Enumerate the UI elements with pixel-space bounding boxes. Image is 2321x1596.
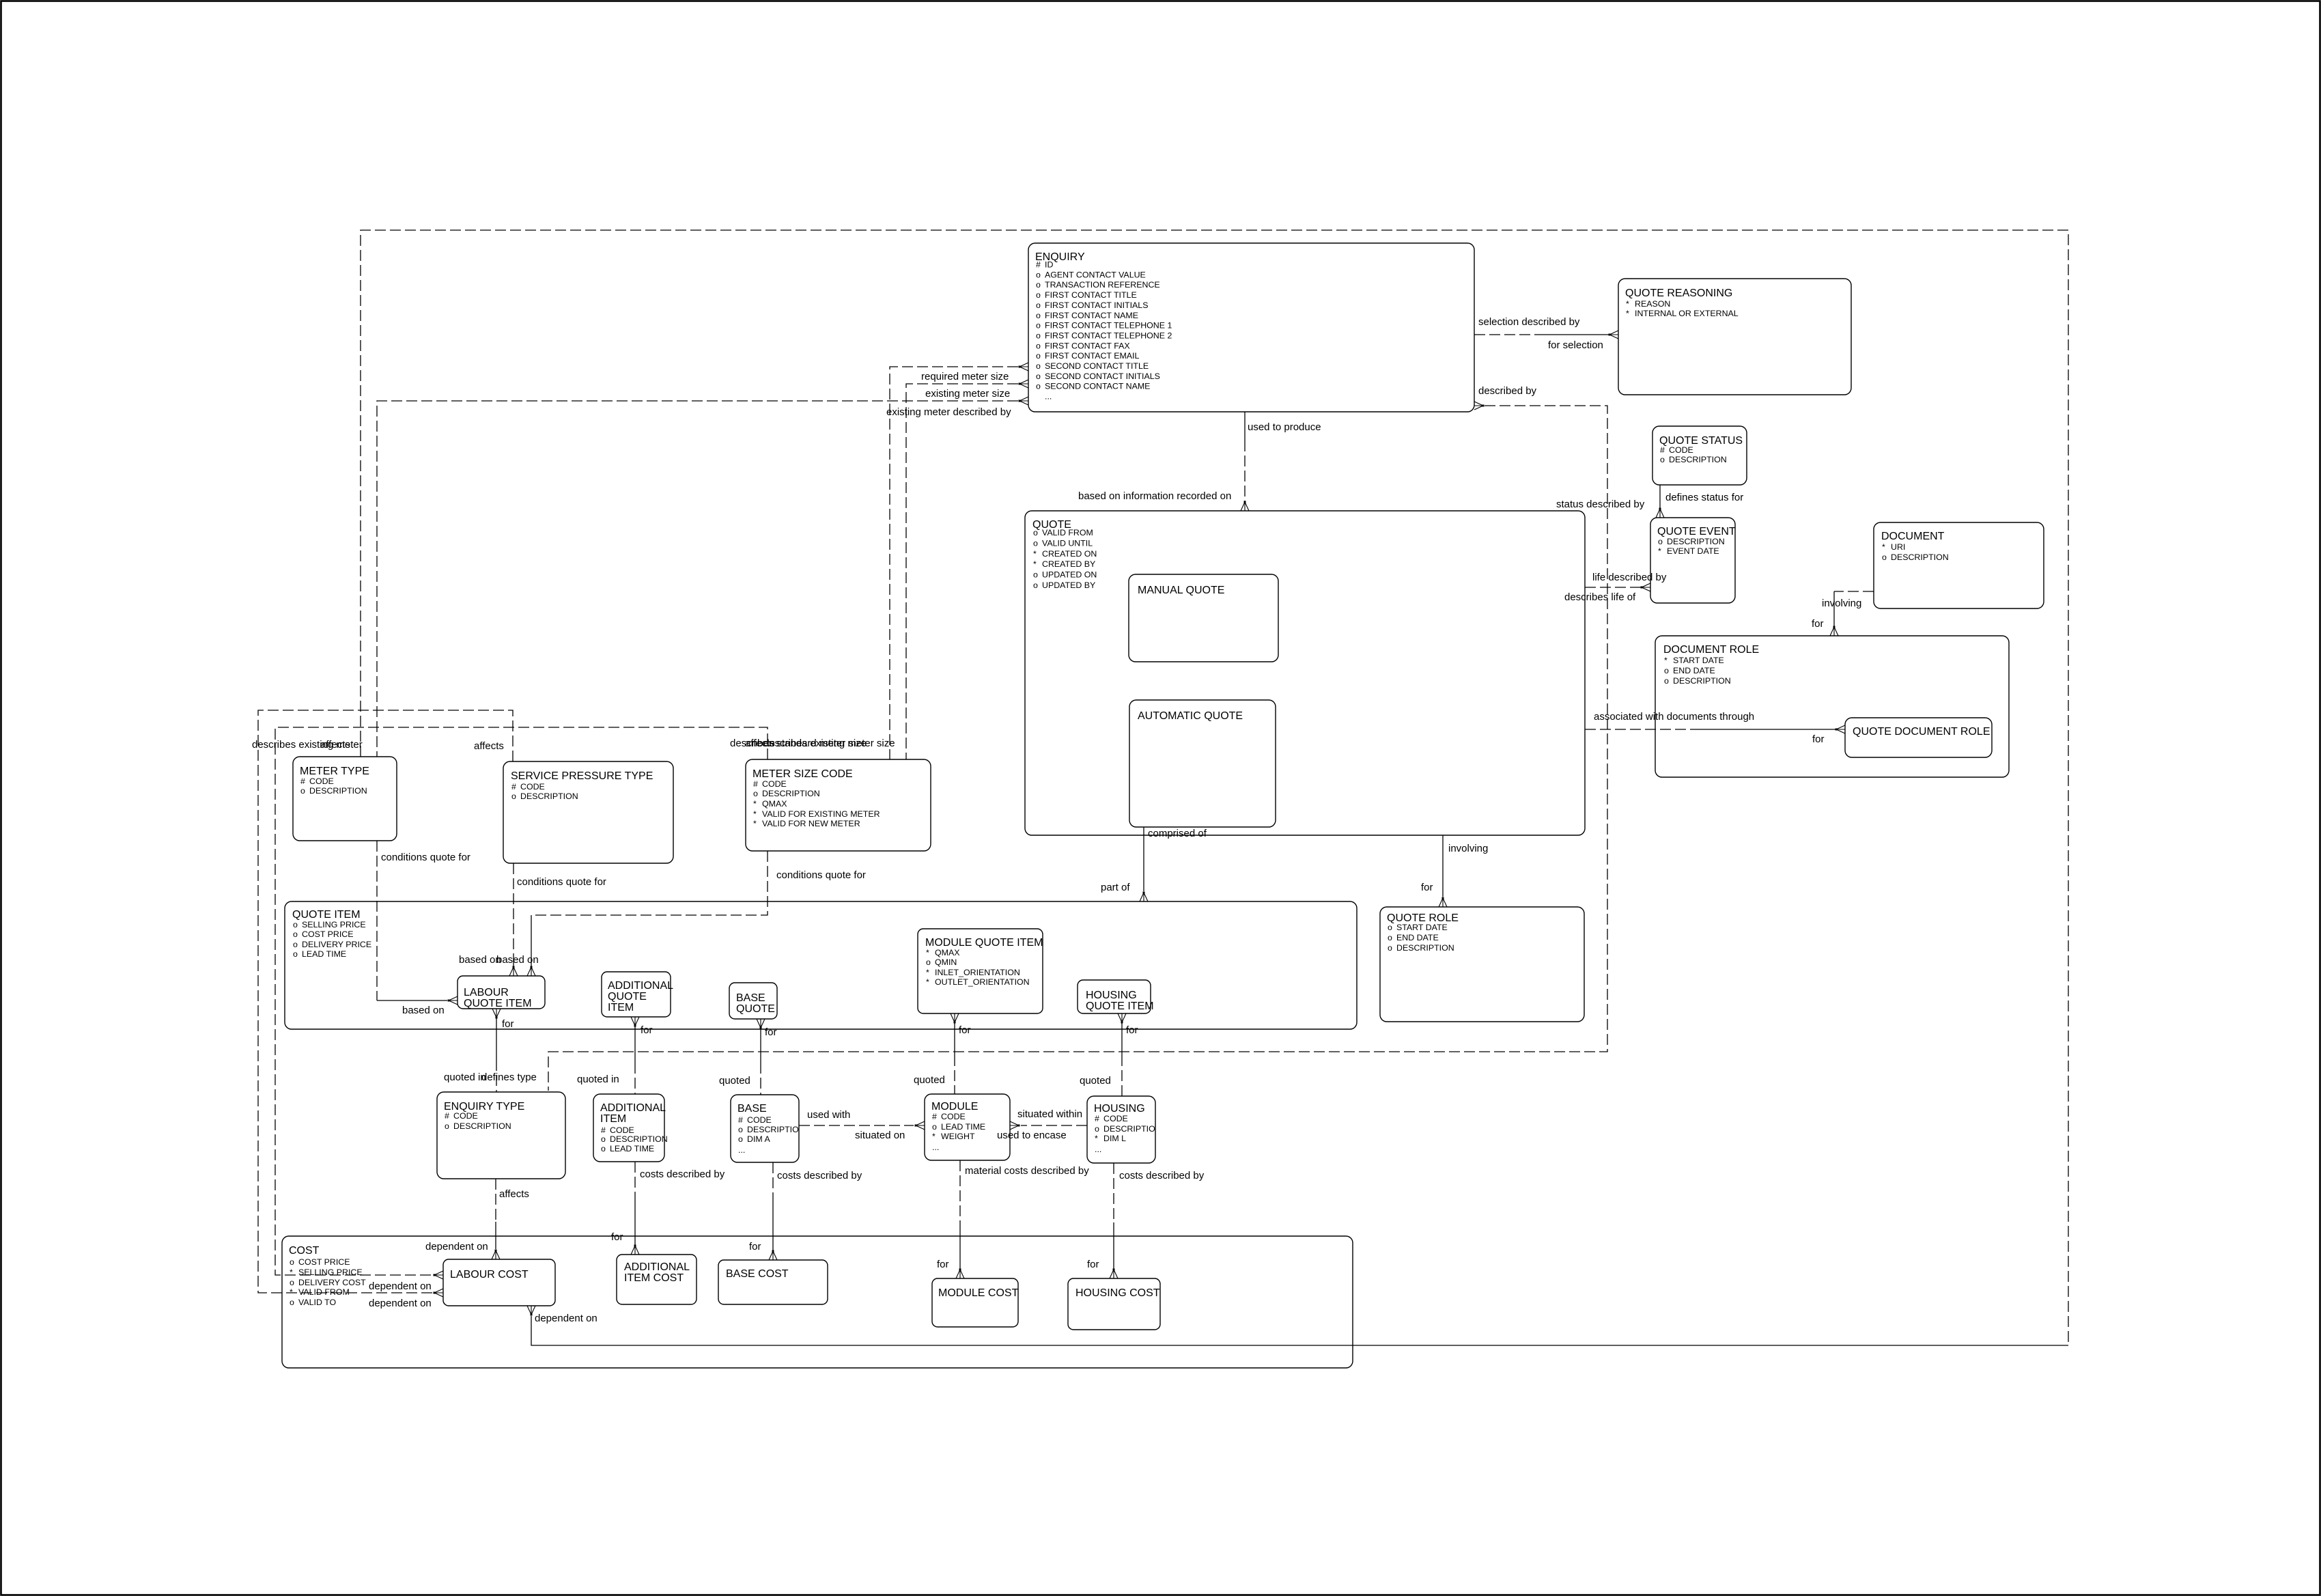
svg-text:#: # [1095, 1114, 1099, 1123]
svg-text:DESCRIPTION: DESCRIPTION [1673, 676, 1731, 686]
svg-text:o: o [1036, 311, 1041, 320]
svg-text:UPDATED BY: UPDATED BY [1042, 580, 1095, 590]
svg-text:SELLING PRICE: SELLING PRICE [298, 1268, 363, 1277]
svg-text:...: ... [738, 1145, 745, 1155]
svg-text:ENQUIRY: ENQUIRY [1035, 251, 1085, 263]
svg-text:required meter size: required meter size [921, 371, 1009, 382]
svg-text:*: * [1095, 1134, 1098, 1143]
svg-text:o: o [1033, 580, 1038, 590]
svg-text:#: # [1660, 445, 1665, 455]
svg-text:situated on: situated on [855, 1130, 905, 1141]
svg-text:DELIVERY COST: DELIVERY COST [298, 1278, 366, 1287]
svg-text:o: o [1036, 290, 1041, 300]
svg-text:CODE: CODE [1669, 445, 1693, 455]
svg-text:CODE: CODE [520, 782, 545, 792]
svg-text:o: o [293, 949, 298, 959]
svg-text:o: o [1658, 537, 1663, 546]
svg-text:...: ... [932, 1143, 939, 1152]
svg-text:*: * [1033, 559, 1037, 569]
svg-text:DESCRIPTION: DESCRIPTION [1669, 455, 1727, 464]
svg-text:o: o [511, 792, 516, 801]
svg-text:o: o [293, 920, 298, 929]
svg-text:QUOTE REASONING: QUOTE REASONING [1625, 288, 1732, 299]
svg-text:DESCRIPTION: DESCRIPTION [309, 786, 367, 796]
svg-text:conditions quote for: conditions quote for [517, 876, 606, 888]
svg-text:INTERNAL OR EXTERNAL: INTERNAL OR EXTERNAL [1635, 309, 1739, 318]
svg-text:END DATE: END DATE [1396, 933, 1439, 942]
svg-text:#: # [932, 1112, 937, 1121]
svg-text:DESCRIPTIO: DESCRIPTIO [747, 1125, 799, 1134]
svg-text:...: ... [1045, 392, 1052, 402]
svg-text:SELLING PRICE: SELLING PRICE [302, 920, 366, 929]
svg-text:for: for [502, 1018, 514, 1030]
svg-text:CODE: CODE [762, 779, 787, 789]
svg-text:ADDITIONAL: ADDITIONAL [624, 1261, 690, 1273]
svg-text:URI: URI [1891, 542, 1905, 552]
svg-text:*: * [290, 1268, 293, 1277]
svg-text:conditions quote for: conditions quote for [381, 852, 470, 863]
svg-text:CREATED ON: CREATED ON [1042, 549, 1097, 559]
svg-text:describes life of: describes life of [1564, 591, 1636, 603]
svg-text:o: o [293, 929, 298, 939]
svg-text:ADDITIONAL: ADDITIONAL [600, 1102, 666, 1114]
svg-text:*: * [753, 799, 757, 809]
svg-text:dependent on: dependent on [535, 1313, 597, 1324]
svg-text:FIRST CONTACT TITLE: FIRST CONTACT TITLE [1045, 290, 1137, 300]
svg-text:BASE: BASE [736, 992, 765, 1004]
svg-text:costs described by: costs described by [777, 1170, 862, 1181]
svg-text:COST: COST [289, 1245, 320, 1257]
svg-text:FIRST CONTACT NAME: FIRST CONTACT NAME [1045, 311, 1138, 320]
svg-text:LEAD TIME: LEAD TIME [941, 1122, 985, 1132]
svg-text:*: * [932, 1132, 936, 1141]
svg-text:...: ... [1095, 1145, 1101, 1154]
svg-text:describes existing meter size: describes existing meter size [763, 738, 895, 749]
svg-text:AGENT CONTACT VALUE: AGENT CONTACT VALUE [1045, 270, 1146, 279]
svg-text:DESCRIPTION: DESCRIPTION [520, 792, 578, 801]
svg-text:#: # [753, 779, 758, 789]
svg-text:METER TYPE: METER TYPE [300, 766, 369, 777]
svg-text:DESCRIPTION: DESCRIPTION [762, 789, 820, 798]
svg-text:SECOND CONTACT NAME: SECOND CONTACT NAME [1045, 382, 1150, 391]
svg-text:used with: used with [807, 1109, 850, 1121]
svg-text:#: # [601, 1125, 606, 1135]
svg-text:o: o [290, 1278, 294, 1287]
svg-text:CODE: CODE [309, 776, 334, 786]
svg-text:BASE: BASE [737, 1103, 767, 1115]
svg-text:LEAD TIME: LEAD TIME [302, 949, 346, 959]
svg-text:LABOUR: LABOUR [464, 987, 509, 998]
svg-text:CODE: CODE [1103, 1114, 1128, 1123]
svg-text:o: o [1036, 331, 1041, 340]
svg-text:DOCUMENT: DOCUMENT [1881, 531, 1945, 542]
svg-text:life described by: life described by [1592, 572, 1667, 583]
svg-text:for: for [1421, 882, 1433, 893]
svg-text:*: * [1626, 299, 1629, 309]
svg-text:o: o [1036, 382, 1041, 391]
svg-text:DESCRIPTION: DESCRIPTION [1396, 943, 1454, 953]
svg-text:dependent on: dependent on [425, 1241, 488, 1252]
svg-text:CREATED BY: CREATED BY [1042, 559, 1095, 569]
svg-text:MANUAL QUOTE: MANUAL QUOTE [1138, 585, 1224, 596]
svg-text:START DATE: START DATE [1396, 923, 1448, 932]
svg-text:used to produce: used to produce [1248, 421, 1321, 433]
svg-text:DESCRIPTION: DESCRIPTION [610, 1134, 668, 1144]
svg-text:o: o [290, 1257, 294, 1267]
svg-text:ITEM: ITEM [608, 1002, 634, 1013]
svg-text:costs described by: costs described by [640, 1168, 725, 1180]
svg-text:o: o [1095, 1124, 1099, 1134]
svg-text:affects: affects [474, 740, 504, 752]
svg-text:AUTOMATIC QUOTE: AUTOMATIC QUOTE [1138, 710, 1243, 722]
svg-text:for: for [765, 1026, 777, 1038]
svg-text:MODULE: MODULE [931, 1101, 978, 1112]
svg-text:DELIVERY PRICE: DELIVERY PRICE [302, 940, 371, 949]
svg-text:COST PRICE: COST PRICE [302, 929, 354, 939]
svg-text:o: o [753, 789, 758, 798]
svg-text:BASE COST: BASE COST [726, 1268, 789, 1280]
svg-text:COST PRICE: COST PRICE [298, 1257, 350, 1267]
svg-text:CODE: CODE [941, 1112, 966, 1121]
svg-text:DESCRIPTION: DESCRIPTION [453, 1121, 511, 1131]
svg-text:defines type: defines type [481, 1072, 537, 1083]
svg-text:involving: involving [1448, 843, 1488, 854]
svg-text:o: o [1033, 538, 1038, 548]
svg-text:ITEM COST: ITEM COST [624, 1272, 684, 1284]
svg-text:o: o [1388, 933, 1392, 942]
svg-text:VALID FROM: VALID FROM [298, 1287, 350, 1297]
svg-text:dependent on: dependent on [369, 1298, 432, 1309]
svg-text:o: o [1036, 341, 1041, 350]
svg-text:FIRST CONTACT TELEPHONE 2: FIRST CONTACT TELEPHONE 2 [1045, 331, 1172, 340]
svg-text:*: * [926, 948, 929, 957]
svg-text:UPDATED ON: UPDATED ON [1042, 570, 1097, 580]
svg-text:#: # [445, 1111, 449, 1121]
svg-text:METER SIZE CODE: METER SIZE CODE [752, 768, 853, 780]
svg-text:for: for [1812, 733, 1825, 745]
svg-text:status described by: status described by [1556, 499, 1645, 510]
svg-text:#: # [511, 782, 516, 792]
svg-text:ADDITIONAL: ADDITIONAL [608, 980, 673, 992]
svg-text:o: o [601, 1134, 606, 1144]
svg-text:REASON: REASON [1635, 299, 1670, 309]
svg-text:o: o [1388, 943, 1392, 953]
svg-text:VALID FROM: VALID FROM [1042, 528, 1093, 537]
svg-text:o: o [1036, 351, 1041, 361]
svg-text:affects: affects [499, 1188, 529, 1200]
svg-text:*: * [926, 968, 929, 977]
svg-text:OUTLET_ORIENTATION: OUTLET_ORIENTATION [935, 977, 1030, 987]
svg-text:o: o [300, 786, 305, 796]
svg-text:DIM A: DIM A [747, 1134, 770, 1144]
svg-text:INLET_ORIENTATION: INLET_ORIENTATION [935, 968, 1020, 977]
svg-text:*: * [1658, 546, 1661, 556]
svg-text:for: for [749, 1241, 761, 1252]
svg-text:associated with documents thro: associated with documents through [1594, 711, 1754, 723]
svg-text:WEIGHT: WEIGHT [941, 1132, 975, 1141]
svg-text:#: # [300, 776, 305, 786]
svg-text:VALID FOR NEW METER: VALID FOR NEW METER [762, 819, 860, 828]
svg-text:o: o [1036, 361, 1041, 371]
svg-text:HOUSING: HOUSING [1094, 1103, 1145, 1115]
svg-text:MODULE COST: MODULE COST [938, 1287, 1019, 1299]
svg-text:LEAD TIME: LEAD TIME [610, 1144, 654, 1153]
svg-text:SECOND CONTACT INITIALS: SECOND CONTACT INITIALS [1045, 372, 1160, 381]
svg-text:conditions quote for: conditions quote for [776, 869, 866, 881]
svg-text:for selection: for selection [1548, 339, 1603, 351]
svg-text:o: o [1036, 372, 1041, 381]
svg-text:o: o [1882, 552, 1887, 562]
svg-text:FIRST CONTACT TELEPHONE 1: FIRST CONTACT TELEPHONE 1 [1045, 321, 1172, 331]
svg-text:DOCUMENT ROLE: DOCUMENT ROLE [1663, 644, 1759, 656]
svg-text:o: o [1033, 570, 1038, 580]
svg-text:HOUSING COST: HOUSING COST [1075, 1287, 1160, 1299]
svg-text:o: o [932, 1122, 937, 1132]
svg-text:HOUSING: HOUSING [1086, 990, 1137, 1001]
svg-text:SECOND CONTACT TITLE: SECOND CONTACT TITLE [1045, 361, 1149, 371]
svg-text:o: o [1036, 270, 1041, 279]
svg-text:QUOTE ITEM: QUOTE ITEM [464, 998, 532, 1009]
svg-text:DESCRIPTION: DESCRIPTION [1667, 537, 1725, 546]
svg-text:existing meter size: existing meter size [925, 388, 1010, 400]
svg-text:o: o [1036, 280, 1041, 290]
svg-text:o: o [738, 1125, 743, 1134]
svg-text:o: o [1036, 300, 1041, 310]
svg-text:o: o [1033, 528, 1038, 537]
svg-text:CODE: CODE [610, 1125, 634, 1135]
svg-text:END DATE: END DATE [1673, 666, 1715, 675]
svg-text:situated within: situated within [1017, 1108, 1082, 1120]
svg-text:QUOTE EVENT: QUOTE EVENT [1657, 526, 1736, 537]
svg-text:quoted: quoted [719, 1075, 750, 1087]
svg-text:*: * [1882, 542, 1885, 552]
svg-text:for: for [937, 1259, 949, 1270]
svg-text:o: o [1664, 666, 1669, 675]
svg-text:based on: based on [459, 954, 501, 966]
svg-text:selection described by: selection described by [1478, 316, 1580, 328]
svg-text:#: # [738, 1115, 743, 1125]
svg-text:defines status for: defines status for [1665, 492, 1743, 503]
svg-text:part of: part of [1101, 882, 1130, 893]
svg-text:*: * [1664, 656, 1668, 665]
svg-text:involving: involving [1822, 598, 1861, 609]
svg-text:*: * [1626, 309, 1629, 318]
svg-text:o: o [738, 1134, 743, 1144]
svg-text:for: for [1087, 1259, 1099, 1270]
svg-text:o: o [1036, 321, 1041, 331]
svg-text:VALID FOR EXISTING METER: VALID FOR EXISTING METER [762, 809, 880, 819]
svg-text:FIRST CONTACT EMAIL: FIRST CONTACT EMAIL [1045, 351, 1139, 361]
svg-text:quoted in: quoted in [444, 1072, 486, 1083]
svg-text:affects: affects [745, 738, 775, 749]
svg-text:QMAX: QMAX [935, 948, 960, 957]
svg-text:MODULE QUOTE ITEM: MODULE QUOTE ITEM [925, 937, 1043, 949]
svg-text:DESCRIPTIO: DESCRIPTIO [1103, 1124, 1155, 1134]
svg-text:ITEM: ITEM [600, 1113, 626, 1125]
svg-text:dependent on: dependent on [369, 1280, 432, 1292]
svg-text:START DATE: START DATE [1673, 656, 1724, 665]
svg-text:CODE: CODE [747, 1115, 772, 1125]
svg-text:for: for [1812, 618, 1824, 630]
svg-text:TRANSACTION REFERENCE: TRANSACTION REFERENCE [1045, 280, 1160, 290]
svg-text:for: for [1126, 1024, 1138, 1036]
svg-text:quoted: quoted [914, 1074, 945, 1086]
svg-text:quoted in: quoted in [577, 1074, 619, 1085]
svg-text:CODE: CODE [453, 1111, 478, 1121]
svg-text:LABOUR COST: LABOUR COST [450, 1269, 529, 1280]
svg-text:DIM L: DIM L [1103, 1134, 1126, 1143]
svg-text:o: o [1388, 923, 1392, 932]
svg-text:*: * [1033, 549, 1037, 559]
svg-text:o: o [445, 1121, 449, 1131]
svg-text:VALID UNTIL: VALID UNTIL [1042, 538, 1093, 548]
svg-text:*: * [926, 977, 929, 987]
svg-text:QMAX: QMAX [762, 799, 787, 809]
svg-text:affects: affects [320, 739, 350, 751]
svg-text:*: * [753, 819, 757, 828]
svg-text:QUOTE DOCUMENT ROLE: QUOTE DOCUMENT ROLE [1853, 726, 1991, 738]
svg-text:quoted: quoted [1080, 1075, 1111, 1087]
svg-text:QUOTE ITEM: QUOTE ITEM [292, 909, 361, 921]
svg-text:QMIN: QMIN [935, 957, 957, 967]
svg-text:o: o [1660, 455, 1665, 464]
svg-text:for: for [641, 1024, 653, 1036]
svg-text:QUOTE: QUOTE [736, 1003, 775, 1015]
svg-text:based on: based on [496, 954, 539, 966]
svg-text:described by: described by [1478, 385, 1537, 397]
svg-text:o: o [926, 957, 931, 967]
svg-text:based on: based on [402, 1005, 445, 1016]
svg-text:based on information recorded: based on information recorded on [1078, 490, 1231, 502]
svg-text:material costs described by: material costs described by [965, 1165, 1089, 1177]
svg-text:costs described by: costs described by [1119, 1170, 1205, 1181]
svg-text:#: # [1036, 260, 1041, 270]
svg-text:o: o [290, 1298, 294, 1307]
svg-text:comprised of: comprised of [1148, 828, 1207, 839]
svg-text:FIRST CONTACT INITIALS: FIRST CONTACT INITIALS [1045, 300, 1148, 310]
svg-text:VALID TO: VALID TO [298, 1298, 336, 1307]
svg-text:existing meter described by: existing meter described by [886, 406, 1011, 418]
svg-text:for: for [611, 1231, 623, 1243]
svg-text:*: * [290, 1287, 293, 1297]
svg-text:SERVICE PRESSURE TYPE: SERVICE PRESSURE TYPE [511, 770, 653, 782]
svg-text:QUOTE: QUOTE [608, 991, 647, 1003]
svg-text:FIRST CONTACT FAX: FIRST CONTACT FAX [1045, 341, 1130, 350]
svg-text:EVENT DATE: EVENT DATE [1667, 546, 1719, 556]
svg-text:*: * [753, 809, 757, 819]
svg-text:o: o [293, 940, 298, 949]
svg-text:ID: ID [1045, 260, 1053, 270]
svg-text:used to encase: used to encase [997, 1130, 1067, 1141]
svg-text:o: o [601, 1144, 606, 1153]
svg-text:DESCRIPTION: DESCRIPTION [1891, 552, 1949, 562]
svg-text:for: for [959, 1024, 971, 1036]
svg-text:QUOTE ITEM: QUOTE ITEM [1086, 1000, 1154, 1012]
svg-text:o: o [1664, 676, 1669, 686]
